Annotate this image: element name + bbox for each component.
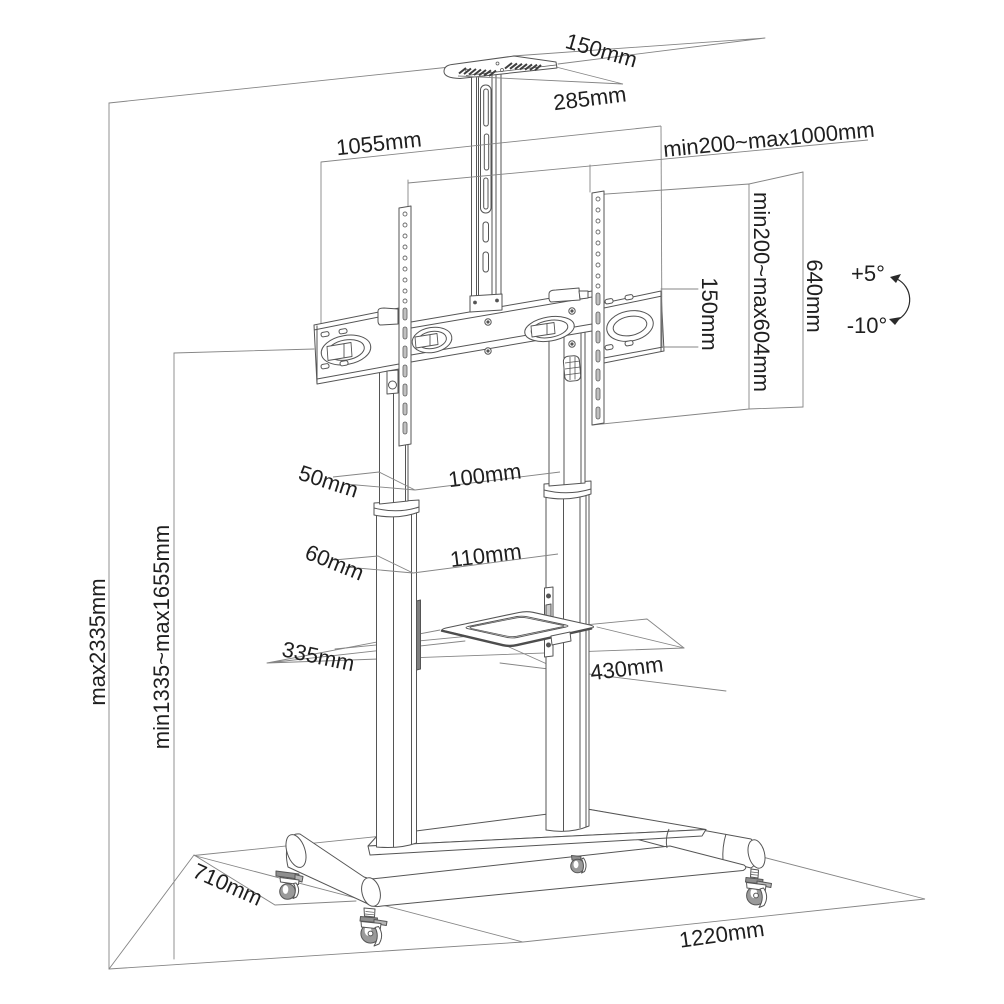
svg-text:150mm: 150mm [697, 277, 722, 350]
svg-text:640mm: 640mm [802, 259, 827, 332]
svg-text:+5°: +5° [851, 261, 885, 286]
svg-text:max2335mm: max2335mm [85, 578, 110, 705]
svg-text:min1335~max1655mm: min1335~max1655mm [149, 525, 174, 749]
svg-text:min200~max604mm: min200~max604mm [749, 192, 774, 392]
svg-text:-10°: -10° [847, 313, 888, 338]
